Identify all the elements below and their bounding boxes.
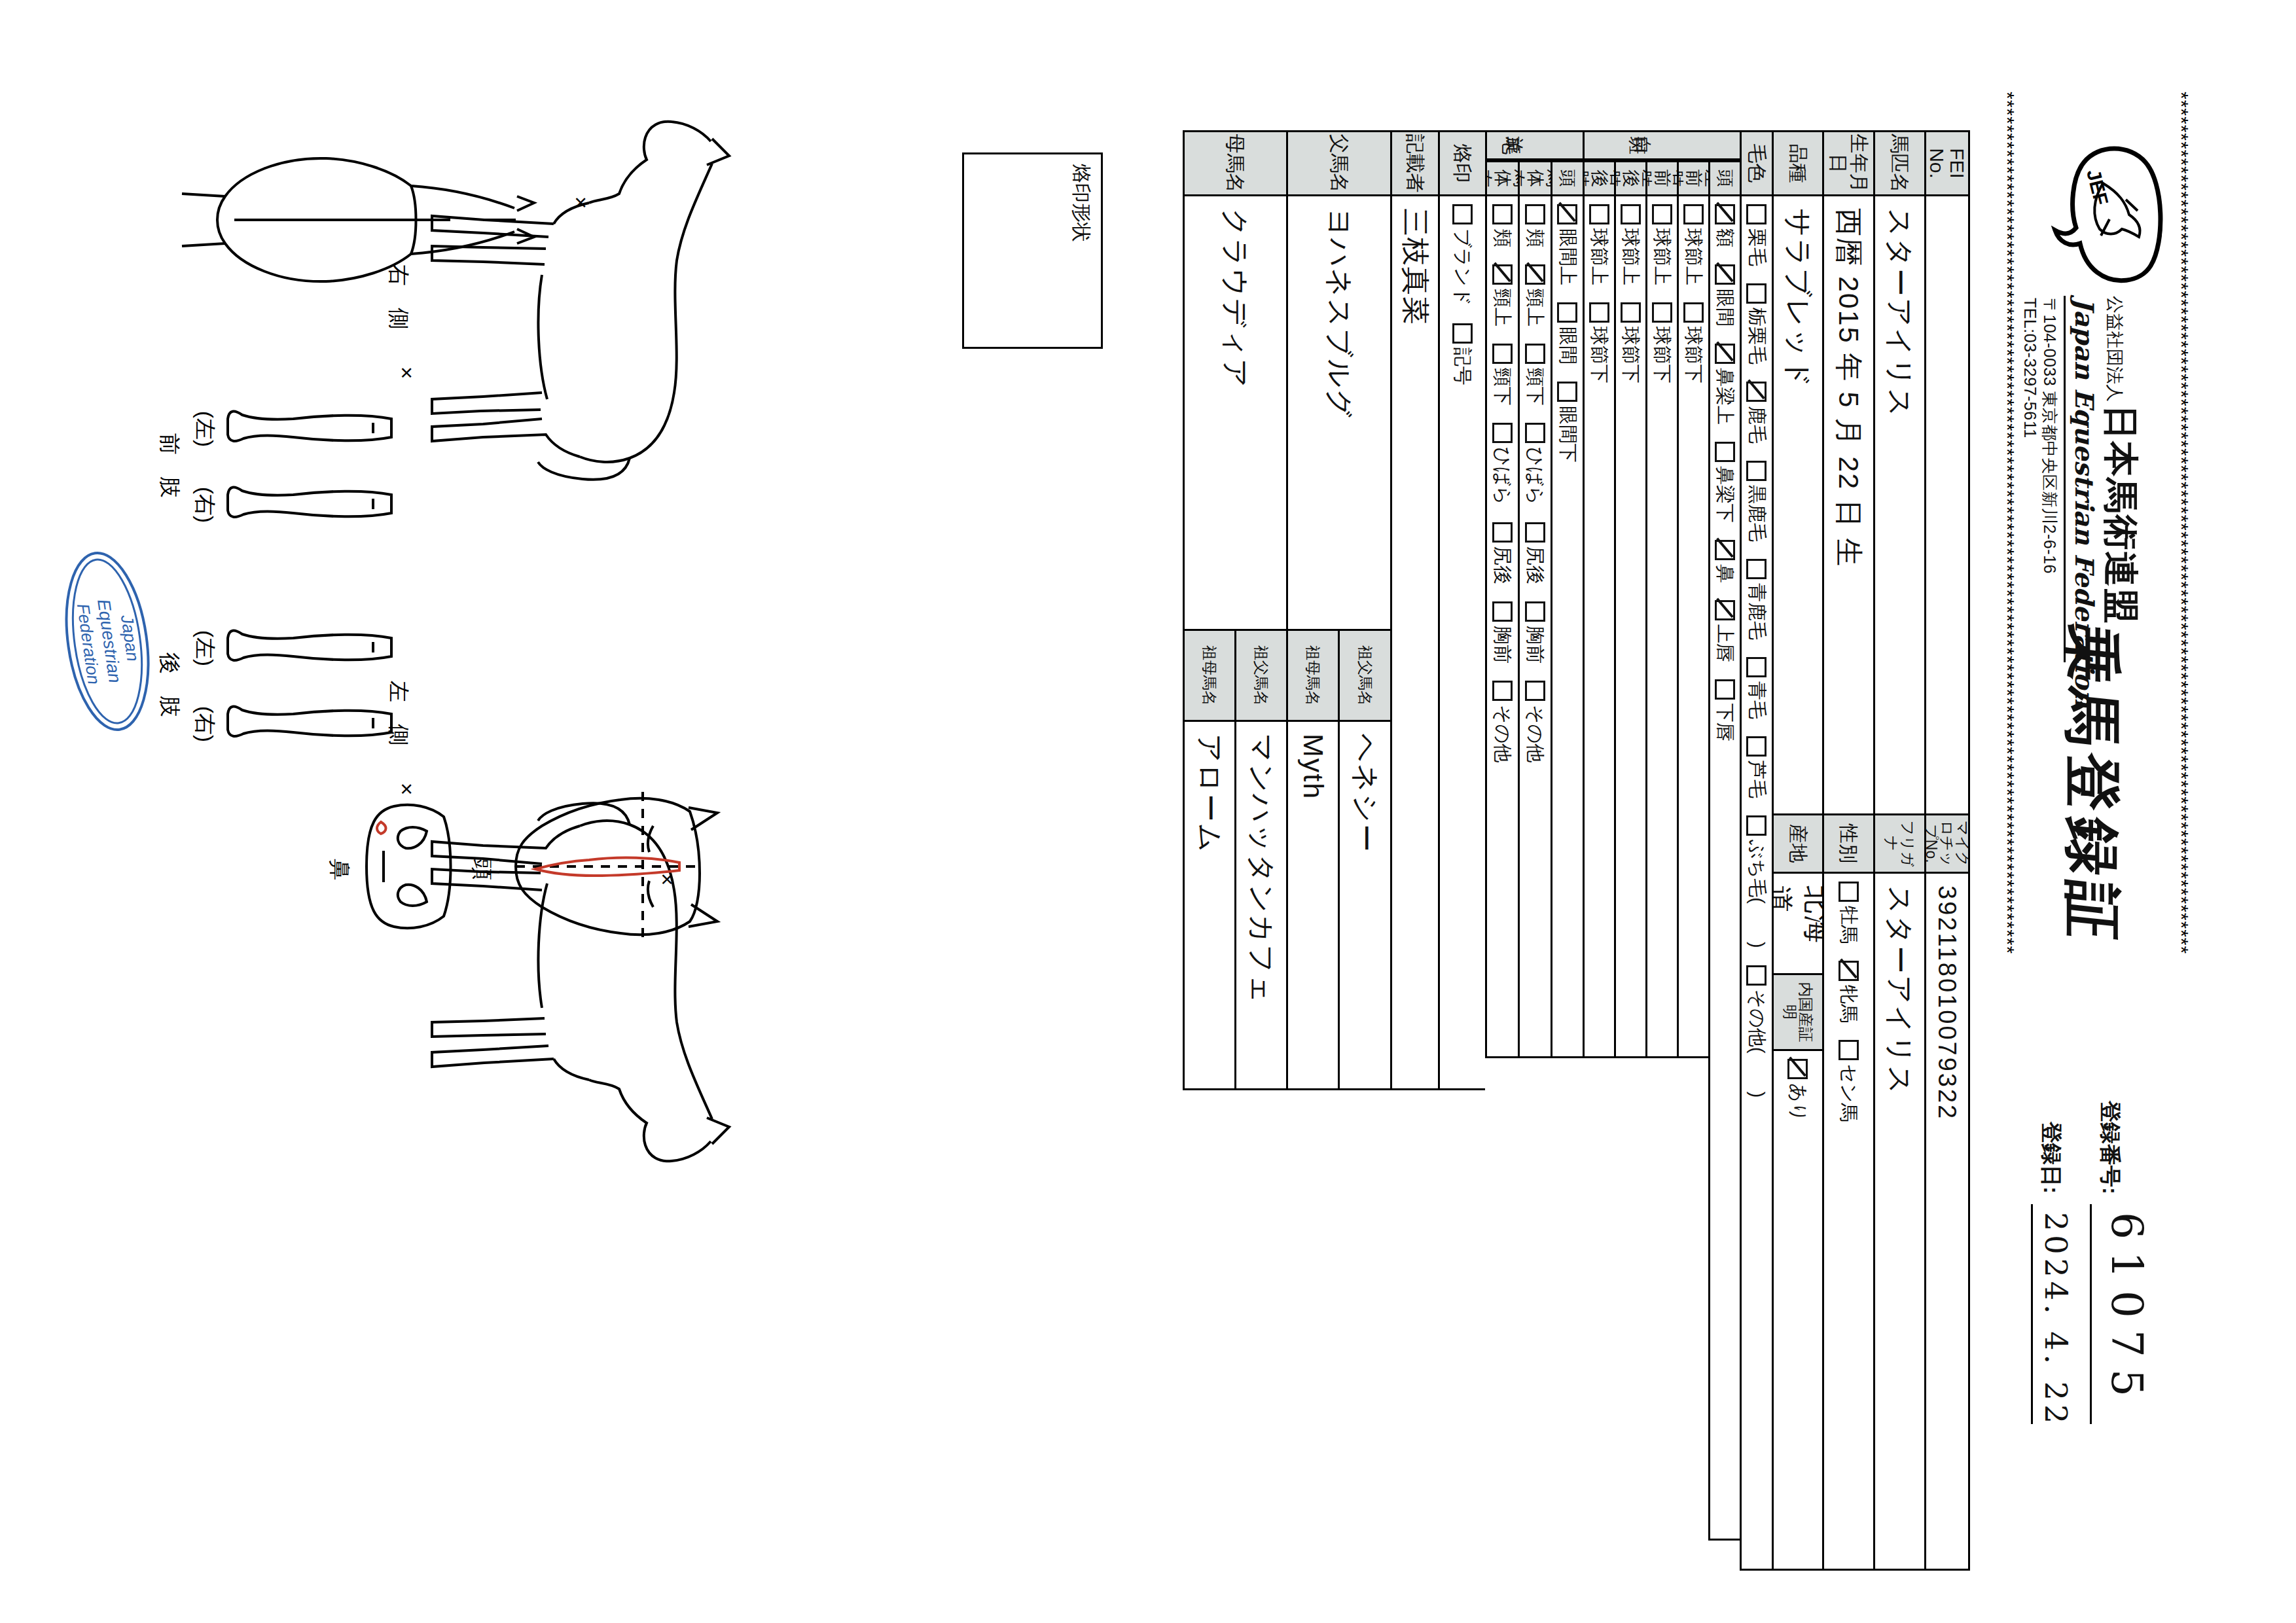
checkbox-item: 頸下: [1490, 344, 1516, 406]
checkbox-group: 球節上球節下: [1614, 196, 1645, 1058]
horse-diagrams: × 右 側 × 左 側 × × 頭: [0, 0, 758, 1623]
hind-legs-label: 後 肢: [158, 652, 182, 717]
asterisk-border-top: ****************************************…: [2170, 92, 2193, 1584]
checkbox-group: 栗毛栃栗毛鹿毛黒鹿毛青鹿毛青毛芦毛ぶち毛( )その他( ): [1740, 196, 1772, 1571]
merged-group-label: 白斑: [1583, 130, 1740, 160]
checkbox-label: その他: [1490, 705, 1516, 762]
checkbox-item: 青鹿毛: [1744, 559, 1770, 640]
checkbox-checked: [1839, 961, 1859, 981]
checkbox-item: 胸前: [1490, 601, 1516, 664]
checkbox-label: 鼻: [1712, 564, 1738, 583]
checkbox-label: 胸前: [1490, 626, 1516, 664]
checkbox-item: 球節下: [1681, 302, 1707, 383]
checkbox-unchecked: [1492, 522, 1513, 543]
checkbox-label: 頬: [1522, 228, 1549, 247]
org-name: 日本馬術連盟: [2102, 404, 2141, 624]
table-row: 馬体右頬頸上頸下ひばら尻後胸前その他: [1485, 160, 1518, 1058]
checkbox-item: その他: [1522, 681, 1549, 762]
checkbox-item: セン馬: [1836, 1040, 1862, 1122]
checkbox-label: 眼間下: [1554, 406, 1581, 463]
checkbox-unchecked: [1621, 302, 1641, 323]
row-sublabel: 右後肢: [1583, 162, 1614, 196]
grandparent-value: ヘネシー: [1338, 722, 1391, 1090]
checkbox-item: 眼間: [1712, 264, 1738, 327]
grandparent-label: 祖父馬名: [1234, 631, 1286, 722]
table-row: 頭額眼間鼻梁上鼻梁下鼻上唇下唇: [1708, 160, 1740, 1541]
checkbox-item: 頬: [1490, 204, 1516, 247]
checkbox-unchecked: [1747, 283, 1767, 304]
checkbox-item: 牡馬: [1836, 882, 1862, 944]
org-tel: TEL:03-3297-5611: [2020, 298, 2039, 438]
checkbox-checked: [1715, 540, 1735, 560]
checkbox-item: 頸上: [1490, 264, 1516, 327]
front-legs-label: 前 肢: [158, 433, 182, 498]
table-row: 右後肢球節上球節下: [1583, 160, 1614, 1058]
checkbox-label: 頬: [1490, 228, 1516, 247]
cell-value: クラウディア: [1183, 196, 1286, 631]
table-row: 馬匹名スターアイリスフリガナスターアイリス: [1873, 130, 1924, 1571]
checkbox-item: 球節上: [1649, 204, 1676, 285]
checkbox-item: 球節下: [1649, 302, 1676, 383]
certificate-title: 乗馬登録証: [2053, 621, 2131, 950]
checkbox-group: 球節上球節下: [1677, 196, 1708, 1058]
registration-date: 2024. 4. 22: [2038, 1212, 2073, 1427]
row-label: 馬匹名: [1873, 132, 1924, 196]
row-sublabel: 左後肢: [1614, 162, 1645, 196]
checkbox-checked: [1715, 264, 1735, 285]
hind-leg-left-label: (左): [193, 630, 217, 666]
checkbox-group: ブランド記号: [1438, 196, 1485, 1090]
checkbox-label: 尻後: [1522, 546, 1549, 584]
checkbox-unchecked: [1525, 681, 1545, 701]
checkbox-item: 球節上: [1587, 204, 1613, 285]
right-side-label: 右 側: [387, 264, 411, 329]
checkbox-item: 鹿毛: [1744, 382, 1770, 444]
checkbox-label: 頸下: [1490, 368, 1516, 406]
checkbox-label: 尻後: [1490, 546, 1516, 584]
cell-value: 三枝真菜: [1390, 196, 1438, 1090]
grandparent-value: マンハッタンカフェ: [1234, 722, 1286, 1090]
checkbox-item: 額: [1712, 204, 1738, 247]
grandparent-stack: 祖父馬名ヘネシー祖母馬名Myth: [1286, 631, 1390, 1090]
cell-value: スターアイリス: [1873, 874, 1924, 1571]
checkbox-item: その他( ): [1744, 965, 1770, 1098]
row-label: フリガナ: [1873, 815, 1924, 874]
checkbox-group: 頬頸上頸下ひばら尻後胸前その他: [1485, 196, 1518, 1058]
registration-table: FEI No.マイクロチップNo.392118010079322馬匹名スターアイ…: [1968, 130, 1970, 1571]
checkbox-checked: [1788, 1059, 1808, 1079]
front-legs-diagram: (左) (右) 前 肢: [158, 411, 391, 523]
checkbox-item: ひばら: [1490, 423, 1516, 505]
cell-value: ヨハネスブルグ: [1286, 196, 1390, 631]
checkbox-label: 球節下: [1649, 327, 1676, 383]
cell-value: サラブレッド: [1772, 196, 1822, 815]
row-label: マイクロチップNo.: [1924, 815, 1968, 874]
header-rule: [2064, 296, 2066, 662]
checkbox-unchecked: [1747, 461, 1767, 481]
checkbox-label: セン馬: [1836, 1064, 1862, 1122]
checkbox-label: 栃栗毛: [1744, 308, 1770, 365]
grandparent-label: 祖母馬名: [1286, 631, 1338, 722]
checkbox-unchecked: [1558, 382, 1578, 402]
checkbox-item: 眼間下: [1554, 382, 1581, 463]
checkbox-label: 頸上: [1522, 289, 1549, 327]
checkbox-label: 下唇: [1712, 704, 1738, 741]
checkbox-unchecked: [1492, 204, 1513, 224]
checkbox-label: 球節下: [1618, 327, 1644, 383]
checkbox-label: 額: [1712, 228, 1738, 247]
grandparent-row: 祖父馬名マンハッタンカフェ: [1234, 631, 1286, 1090]
checkbox-unchecked: [1839, 1040, 1859, 1060]
checkbox-unchecked: [1525, 522, 1545, 543]
checkbox-item: 頸上: [1522, 264, 1549, 327]
row-sublabel: 頭: [1551, 162, 1583, 196]
x-mark-right: ×: [395, 366, 419, 379]
checkbox-unchecked: [1683, 204, 1704, 224]
checkbox-item: 栃栗毛: [1744, 283, 1770, 365]
checkbox-label: 鹿毛: [1744, 406, 1770, 444]
checkbox-item: 下唇: [1712, 679, 1738, 741]
checkbox-unchecked: [1683, 302, 1704, 323]
checkbox-label: ぶち毛( ): [1744, 840, 1770, 948]
cell-value: 西暦 2015 年 5 月 22 日 生: [1822, 196, 1873, 815]
row-label: 烙印: [1438, 132, 1485, 196]
scanned-certificate: ****************************************…: [0, 0, 2296, 1623]
checkbox-group: あり: [1772, 1051, 1822, 1571]
nose-label: 鼻: [328, 859, 352, 880]
checkbox-unchecked: [1652, 204, 1672, 224]
checkbox-group: 牡馬牝馬セン馬: [1822, 874, 1873, 1571]
table-row: 頭眼間上眼間眼間下: [1551, 160, 1583, 1058]
checkbox-label: 記号: [1450, 348, 1476, 385]
checkbox-item: あり: [1785, 1059, 1811, 1122]
checkbox-unchecked: [1492, 681, 1513, 701]
checkbox-item: 頸下: [1522, 344, 1549, 406]
checkbox-label: 球節下: [1587, 327, 1613, 383]
checkbox-group: 眼間上眼間眼間下: [1551, 196, 1583, 1058]
checkbox-item: 胸前: [1522, 601, 1549, 664]
checkbox-item: 芦毛: [1744, 736, 1770, 798]
checkbox-item: 球節上: [1681, 204, 1707, 285]
brand-shape-box: 烙印形状: [962, 152, 1103, 349]
checkbox-item: ひばら: [1522, 423, 1549, 505]
front-leg-left-label: (左): [193, 411, 217, 447]
checkbox-item: 黒鹿毛: [1744, 461, 1770, 542]
table-row: 生年月日西暦 2015 年 5 月 22 日 生性別牡馬牝馬セン馬: [1822, 130, 1873, 1571]
checkbox-item: 上唇: [1712, 600, 1738, 662]
checkbox-label: ひばら: [1522, 447, 1549, 505]
checkbox-checked: [1558, 204, 1578, 224]
registration-number-underline: [2090, 1204, 2092, 1424]
checkbox-label: 胸前: [1522, 626, 1549, 664]
checkbox-unchecked: [1452, 323, 1473, 344]
checkbox-unchecked: [1715, 679, 1735, 700]
checkbox-checked: [1715, 204, 1735, 224]
horse-muzzle-view: 鼻: [328, 805, 451, 929]
cell-value: 北海道: [1772, 874, 1822, 975]
row-label: 産地: [1772, 815, 1822, 874]
row-label: 父馬名: [1286, 132, 1390, 196]
checkbox-label: ひばら: [1490, 447, 1516, 505]
checkbox-item: 頬: [1522, 204, 1549, 247]
checkbox-unchecked: [1715, 442, 1735, 462]
checkbox-checked: [1747, 382, 1767, 402]
brand-shape-label: 烙印形状: [1071, 164, 1092, 242]
row-label: 性別: [1822, 815, 1873, 874]
checkbox-label: 栗毛: [1744, 228, 1770, 266]
checkbox-label: 球節上: [1649, 228, 1676, 285]
grandparent-value: アローム: [1183, 722, 1234, 1090]
org-name-line: 公益社団法人 日本馬術連盟: [2096, 296, 2144, 624]
horse-left-side-view: [432, 803, 729, 1161]
checkbox-unchecked: [1525, 601, 1545, 622]
org-type: 公益社団法人: [2105, 296, 2125, 402]
grandparent-row: 祖母馬名アローム: [1183, 631, 1234, 1090]
row-label: 母馬名: [1183, 132, 1286, 196]
table-row: 右前肢球節上球節下: [1645, 160, 1677, 1058]
checkbox-item: 球節下: [1587, 302, 1613, 383]
checkbox-group: 頬頸上頸下ひばら尻後胸前その他: [1518, 196, 1551, 1058]
checkbox-label: 眼間上: [1554, 228, 1581, 285]
checkbox-item: 球節下: [1618, 302, 1644, 383]
table-row: 左後肢球節上球節下: [1614, 160, 1645, 1058]
checkbox-item: 鼻梁上: [1712, 344, 1738, 425]
grandparent-label: 祖母馬名: [1183, 631, 1234, 722]
grandparent-value: Myth: [1286, 722, 1338, 1090]
row-sublabel: 頭: [1708, 162, 1740, 196]
checkbox-label: 黒鹿毛: [1744, 485, 1770, 542]
checkbox-item: 牝馬: [1836, 961, 1862, 1023]
registration-date-label: 登録日:: [2036, 1122, 2066, 1194]
table-row: 母馬名クラウディア祖父馬名マンハッタンカフェ祖母馬名アローム: [1183, 130, 1286, 1090]
whorl-x-right-neck: ×: [569, 196, 593, 209]
checkbox-unchecked: [1492, 423, 1513, 443]
row-label: FEI No.: [1924, 132, 1968, 196]
cell-value: スターアイリス: [1873, 196, 1924, 815]
checkbox-label: 球節上: [1618, 228, 1644, 285]
certificate-page: ****************************************…: [0, 0, 2296, 1623]
checkbox-unchecked: [1747, 736, 1767, 757]
merged-group-label: 旋毛: [1485, 130, 1583, 160]
checkbox-unchecked: [1747, 815, 1767, 836]
checkbox-label: 鼻梁下: [1712, 466, 1738, 523]
registration-number: 61075: [2102, 1212, 2152, 1408]
front-leg-right-label: (右): [193, 487, 217, 523]
checkbox-label: 牡馬: [1836, 906, 1862, 944]
checkbox-unchecked: [1747, 965, 1767, 986]
table-row: 父馬名ヨハネスブルグ祖父馬名ヘネシー祖母馬名Myth: [1286, 130, 1390, 1090]
checkbox-label: 芦毛: [1744, 760, 1770, 798]
checkbox-label: あり: [1785, 1083, 1811, 1122]
hind-leg-right-label: (右): [193, 706, 217, 742]
checkbox-item: 尻後: [1490, 522, 1516, 584]
checkbox-unchecked: [1589, 204, 1609, 224]
checkbox-unchecked: [1621, 204, 1641, 224]
checkbox-item: 球節上: [1618, 204, 1644, 285]
checkbox-label: 眼間: [1712, 289, 1738, 327]
checkbox-label: 球節下: [1681, 327, 1707, 383]
row-label: 品種: [1772, 132, 1822, 196]
hind-legs-diagram: (左) (右) 後 肢: [158, 630, 391, 742]
row-sublabel: 右前肢: [1645, 162, 1677, 196]
checkbox-item: 青毛: [1744, 657, 1770, 719]
grandparent-label: 祖父馬名: [1338, 631, 1391, 722]
cell-value: 392118010079322: [1924, 874, 1968, 1571]
horse-right-side-view: × 右 側 ×: [387, 122, 729, 480]
registration-number-label: 登録番号:: [2095, 1101, 2125, 1194]
checkbox-item: 尻後: [1522, 522, 1549, 584]
registration-date-underline: [2031, 1204, 2033, 1424]
checkbox-unchecked: [1452, 204, 1473, 224]
cell-value: [1924, 196, 1968, 815]
table-row: 品種サラブレッド産地北海道内国産証明あり: [1772, 130, 1822, 1571]
checkbox-label: 球節上: [1587, 228, 1613, 285]
table-row: 毛色栗毛栃栗毛鹿毛黒鹿毛青鹿毛青毛芦毛ぶち毛( )その他( ): [1740, 130, 1772, 1571]
table-row: 左前肢球節上球節下: [1677, 160, 1708, 1058]
whorl-x-head: ×: [655, 873, 679, 885]
checkbox-item: ブランド: [1450, 204, 1476, 306]
checkbox-item: ぶち毛( ): [1744, 815, 1770, 948]
row-label: 毛色: [1740, 132, 1772, 196]
asterisk-border-bottom: ****************************************…: [1996, 92, 2018, 1584]
org-address: 〒104-0033 東京都中央区新川2-6-16: [2039, 298, 2060, 574]
checkbox-item: その他: [1490, 681, 1516, 762]
checkbox-unchecked: [1525, 423, 1545, 443]
row-sublabel: 馬体左: [1518, 162, 1551, 196]
checkbox-unchecked: [1747, 204, 1767, 224]
checkbox-label: ブランド: [1450, 228, 1476, 306]
table-row: 記載者三枝真菜: [1390, 130, 1438, 1090]
checkbox-unchecked: [1747, 657, 1767, 677]
x-mark-left: ×: [395, 783, 419, 795]
checkbox-unchecked: [1589, 302, 1609, 323]
horse-head-front-view: × 頭: [471, 792, 717, 942]
checkbox-checked: [1715, 600, 1735, 620]
checkbox-item: 栗毛: [1744, 204, 1770, 266]
grandparent-row: 祖父馬名ヘネシー: [1338, 631, 1391, 1090]
jef-logo-text: JEF: [2083, 167, 2112, 207]
muzzle-red-marking: [377, 822, 386, 834]
checkbox-unchecked: [1839, 882, 1859, 902]
checkbox-item: 鼻梁下: [1712, 442, 1738, 523]
checkbox-label: その他: [1522, 705, 1549, 762]
checkbox-unchecked: [1492, 344, 1513, 364]
checkbox-unchecked: [1558, 302, 1578, 323]
table-row: 烙印ブランド記号: [1438, 130, 1485, 1090]
checkbox-item: 眼間: [1554, 302, 1581, 365]
checkbox-label: 眼間: [1554, 327, 1581, 365]
checkbox-checked: [1715, 344, 1735, 364]
checkbox-unchecked: [1492, 601, 1513, 622]
jef-logo: JEF: [2031, 137, 2165, 285]
checkbox-label: 牝馬: [1836, 985, 1862, 1023]
checkbox-unchecked: [1525, 204, 1545, 224]
checkbox-checked: [1492, 264, 1513, 285]
row-sublabel: 左前肢: [1677, 162, 1708, 196]
checkbox-group: 球節上球節下: [1583, 196, 1614, 1058]
checkbox-group: 額眼間鼻梁上鼻梁下鼻上唇下唇: [1708, 196, 1740, 1541]
checkbox-group: 球節上球節下: [1645, 196, 1677, 1058]
checkbox-unchecked: [1525, 344, 1545, 364]
checkbox-item: 鼻: [1712, 540, 1738, 583]
grandparent-stack: 祖父馬名マンハッタンカフェ祖母馬名アローム: [1183, 631, 1286, 1090]
row-label: 生年月日: [1822, 132, 1873, 196]
table-row: FEI No.マイクロチップNo.392118010079322: [1924, 130, 1968, 1571]
checkbox-item: 記号: [1450, 323, 1476, 385]
checkbox-unchecked: [1747, 559, 1767, 579]
table-row: 馬体左頬頸上頸下ひばら尻後胸前その他: [1518, 160, 1551, 1058]
checkbox-label: 球節上: [1681, 228, 1707, 285]
row-label: 内国産証明: [1772, 975, 1822, 1051]
head-label: 頭: [471, 859, 495, 880]
checkbox-unchecked: [1652, 302, 1672, 323]
checkbox-label: その他( ): [1744, 990, 1770, 1098]
row-label: 記載者: [1390, 132, 1438, 196]
checkbox-label: 頸上: [1490, 289, 1516, 327]
grandparent-row: 祖母馬名Myth: [1286, 631, 1338, 1090]
checkbox-label: 上唇: [1712, 624, 1738, 662]
checkbox-label: 頸下: [1522, 368, 1549, 406]
checkbox-label: 青鹿毛: [1744, 583, 1770, 640]
row-sublabel: 馬体右: [1485, 162, 1518, 196]
checkbox-label: 鼻梁上: [1712, 368, 1738, 425]
checkbox-label: 青毛: [1744, 681, 1770, 719]
checkbox-checked: [1525, 264, 1545, 285]
checkbox-item: 眼間上: [1554, 204, 1581, 285]
